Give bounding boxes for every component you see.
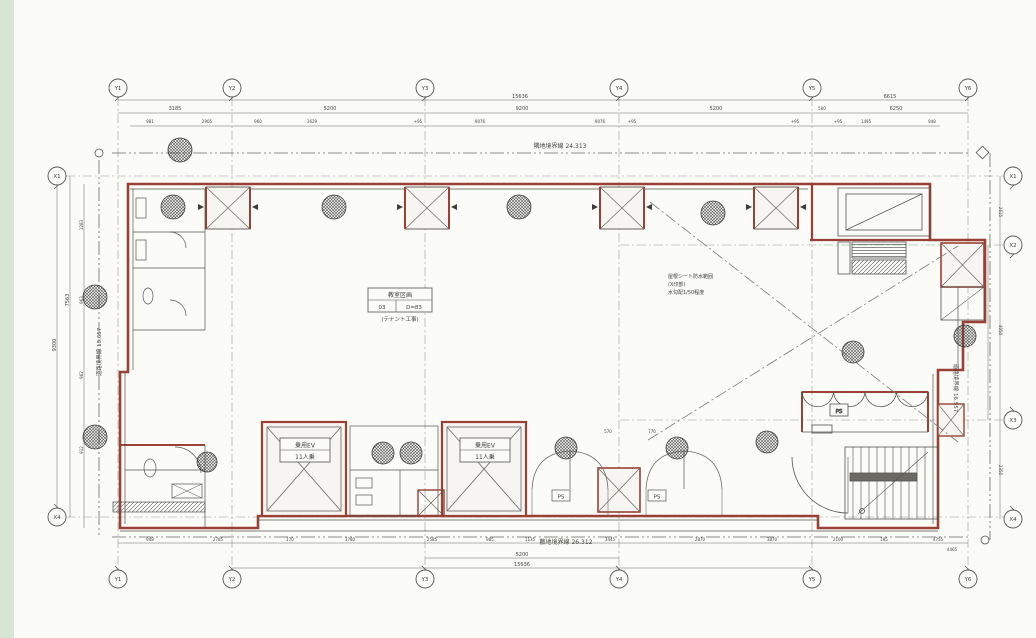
dim-label: 2785 [213,537,224,542]
dim-label: 985 [486,537,494,542]
dim-label: 770 [648,429,656,434]
dim-label: +95 [834,119,843,124]
dim-label: 5200 [710,106,723,112]
elevator-capacity: 11人乗 [295,454,315,461]
elevator-capacity: 11人乗 [475,454,495,461]
grid-bubble: X1 [1004,167,1022,185]
dim-label: 15636 [512,94,528,100]
zone-cell-b: D=83 [406,305,422,311]
grid-bubble: Y3 [416,79,434,97]
shaft [397,187,457,229]
grid-bubble: Y1 [109,570,127,588]
dim-label: 5200 [324,106,337,112]
grid-bubble-label: Y5 [808,577,816,583]
dim-label: 2350 [998,465,1003,476]
shaft [592,187,652,229]
grid-bubble: X4 [1004,510,1022,528]
grid-bubble: X3 [1004,411,1022,429]
dim-label: 1629 [307,119,318,124]
dim-label: 570 [604,429,612,434]
dim-label: 1135 [525,537,536,542]
floor-plan-drawing: 乗用EV 11人乗 乗用EV 11人乗 PS PS [0,0,1036,638]
dim-label: 3870 [767,537,778,542]
elevator-label: 乗用EV [475,443,496,450]
grid-bubble-label: Y2 [228,86,236,92]
grid-bubble: Y6 [959,79,977,97]
dim-label: +95 [791,119,800,124]
dim-label: 9300 [52,339,58,352]
grid-bubble: X2 [1004,236,1022,254]
dim-label: 15636 [514,562,530,568]
grid-bubble-label: Y6 [964,577,972,583]
dim-label: 948 [928,119,936,124]
floor-plan-page: 乗用EV 11人乗 乗用EV 11人乗 PS PS [0,0,1036,638]
dim-label: 963 [79,296,84,304]
grid-bubble-label: Y2 [228,577,236,583]
dim-label: 隣地境界線 24.313 [534,142,587,150]
right-mid-shaft [938,404,964,436]
ps-label: PS [558,495,565,501]
grid-bubble-label: Y1 [114,86,122,92]
grid-bubble-label: Y1 [114,577,122,583]
grid-bubble: Y4 [610,79,628,97]
dim-label: 道路境界線 18.657 [95,327,103,376]
dim-label: 敷地境界線 26.312 [540,538,593,546]
ps-label: PS [836,409,843,415]
roof-note-line2: (X印部) [668,281,685,288]
dim-label: 5200 [516,552,529,558]
dim-label: 948 [146,537,154,542]
zone-note: (テナント工事) [381,315,418,323]
dim-label: +95 [628,119,637,124]
roof-note-line1: 屋根シート防水範囲 [668,273,713,280]
dim-label: 2905 [202,119,213,124]
dim-label: 500 [818,106,826,111]
grid-bubble: Y1 [109,79,127,97]
grid-bubble: X4 [48,508,66,526]
dim-label: 4465 [947,547,958,552]
dim-label: 2870 [695,537,706,542]
grid-bubble-label: Y6 [964,86,972,92]
grid-bubble-label: X1 [53,174,60,180]
dim-label: 7563 [65,294,71,307]
grid-bubble-label: Y4 [615,86,623,92]
grid-bubble-label: X4 [1009,517,1017,523]
entry-mat [113,502,205,512]
grid-bubble: X1 [48,167,66,185]
grid-bubble-label: X2 [1009,243,1016,249]
boundary-corner-marker [981,536,989,544]
dim-label: 981 [146,119,154,124]
dim-label: 1283 [79,219,84,230]
dim-label: 9200 [516,106,529,112]
elevator-shaft-1: 乗用EV 11人乗 [262,422,346,516]
grid-bubble-label: Y3 [421,86,429,92]
grid-bubble: Y5 [803,570,821,588]
grid-bubble: Y6 [959,570,977,588]
grid-bubble: Y4 [610,570,628,588]
left-margin-strip [0,0,14,638]
boundary-corner-marker [95,149,103,157]
dim-label: 4755 [933,537,944,542]
grid-bubble: Y2 [223,570,241,588]
dim-label: 3185 [169,106,182,112]
dim-label: 6250 [890,106,903,112]
dim-label: 4050 [998,325,1003,336]
dim-label: 3445 [605,537,616,542]
dim-label: 3780 [345,537,356,542]
dim-label: 6615 [884,94,897,100]
dim-label: 960 [254,119,262,124]
shaft [198,187,258,229]
dim-label: 170 [286,537,294,542]
grid-bubble-label: Y3 [421,577,429,583]
dim-label: 道路境界線 16.557 [952,364,960,413]
grid-bubble-label: Y4 [615,577,623,583]
grid-bubble-label: X1 [1009,174,1016,180]
dim-label: 2585 [427,537,438,542]
zone-cell-a: 03 [379,305,386,311]
grid-bubble: Y3 [416,570,434,588]
elevator-shaft-2: 乗用EV 11人乗 [442,422,526,516]
dim-label: 185 [880,537,888,542]
dim-label: 2100 [833,537,844,542]
grid-bubble-label: X4 [53,515,61,521]
dim-label: 1495 [861,119,872,124]
roof-note-line3: 水勾配1/50程度 [668,289,704,296]
zone-title: 教室区画 [388,291,412,299]
grid-bubble-label: Y5 [808,86,816,92]
dim-label: 9076 [595,119,606,124]
dim-label: 9076 [475,119,486,124]
elevator-label: 乗用EV [295,443,316,450]
dim-label: 2615 [998,207,1003,218]
stair-handrail [850,473,917,481]
dim-label: 912 [79,446,84,454]
dim-label: 962 [79,371,84,379]
ps-label: PS [654,495,661,501]
shaft [746,187,806,229]
grid-bubble: Y2 [223,79,241,97]
dim-label: +95 [414,119,423,124]
grid-bubble-label: X3 [1009,418,1017,424]
grid-bubble: Y5 [803,79,821,97]
